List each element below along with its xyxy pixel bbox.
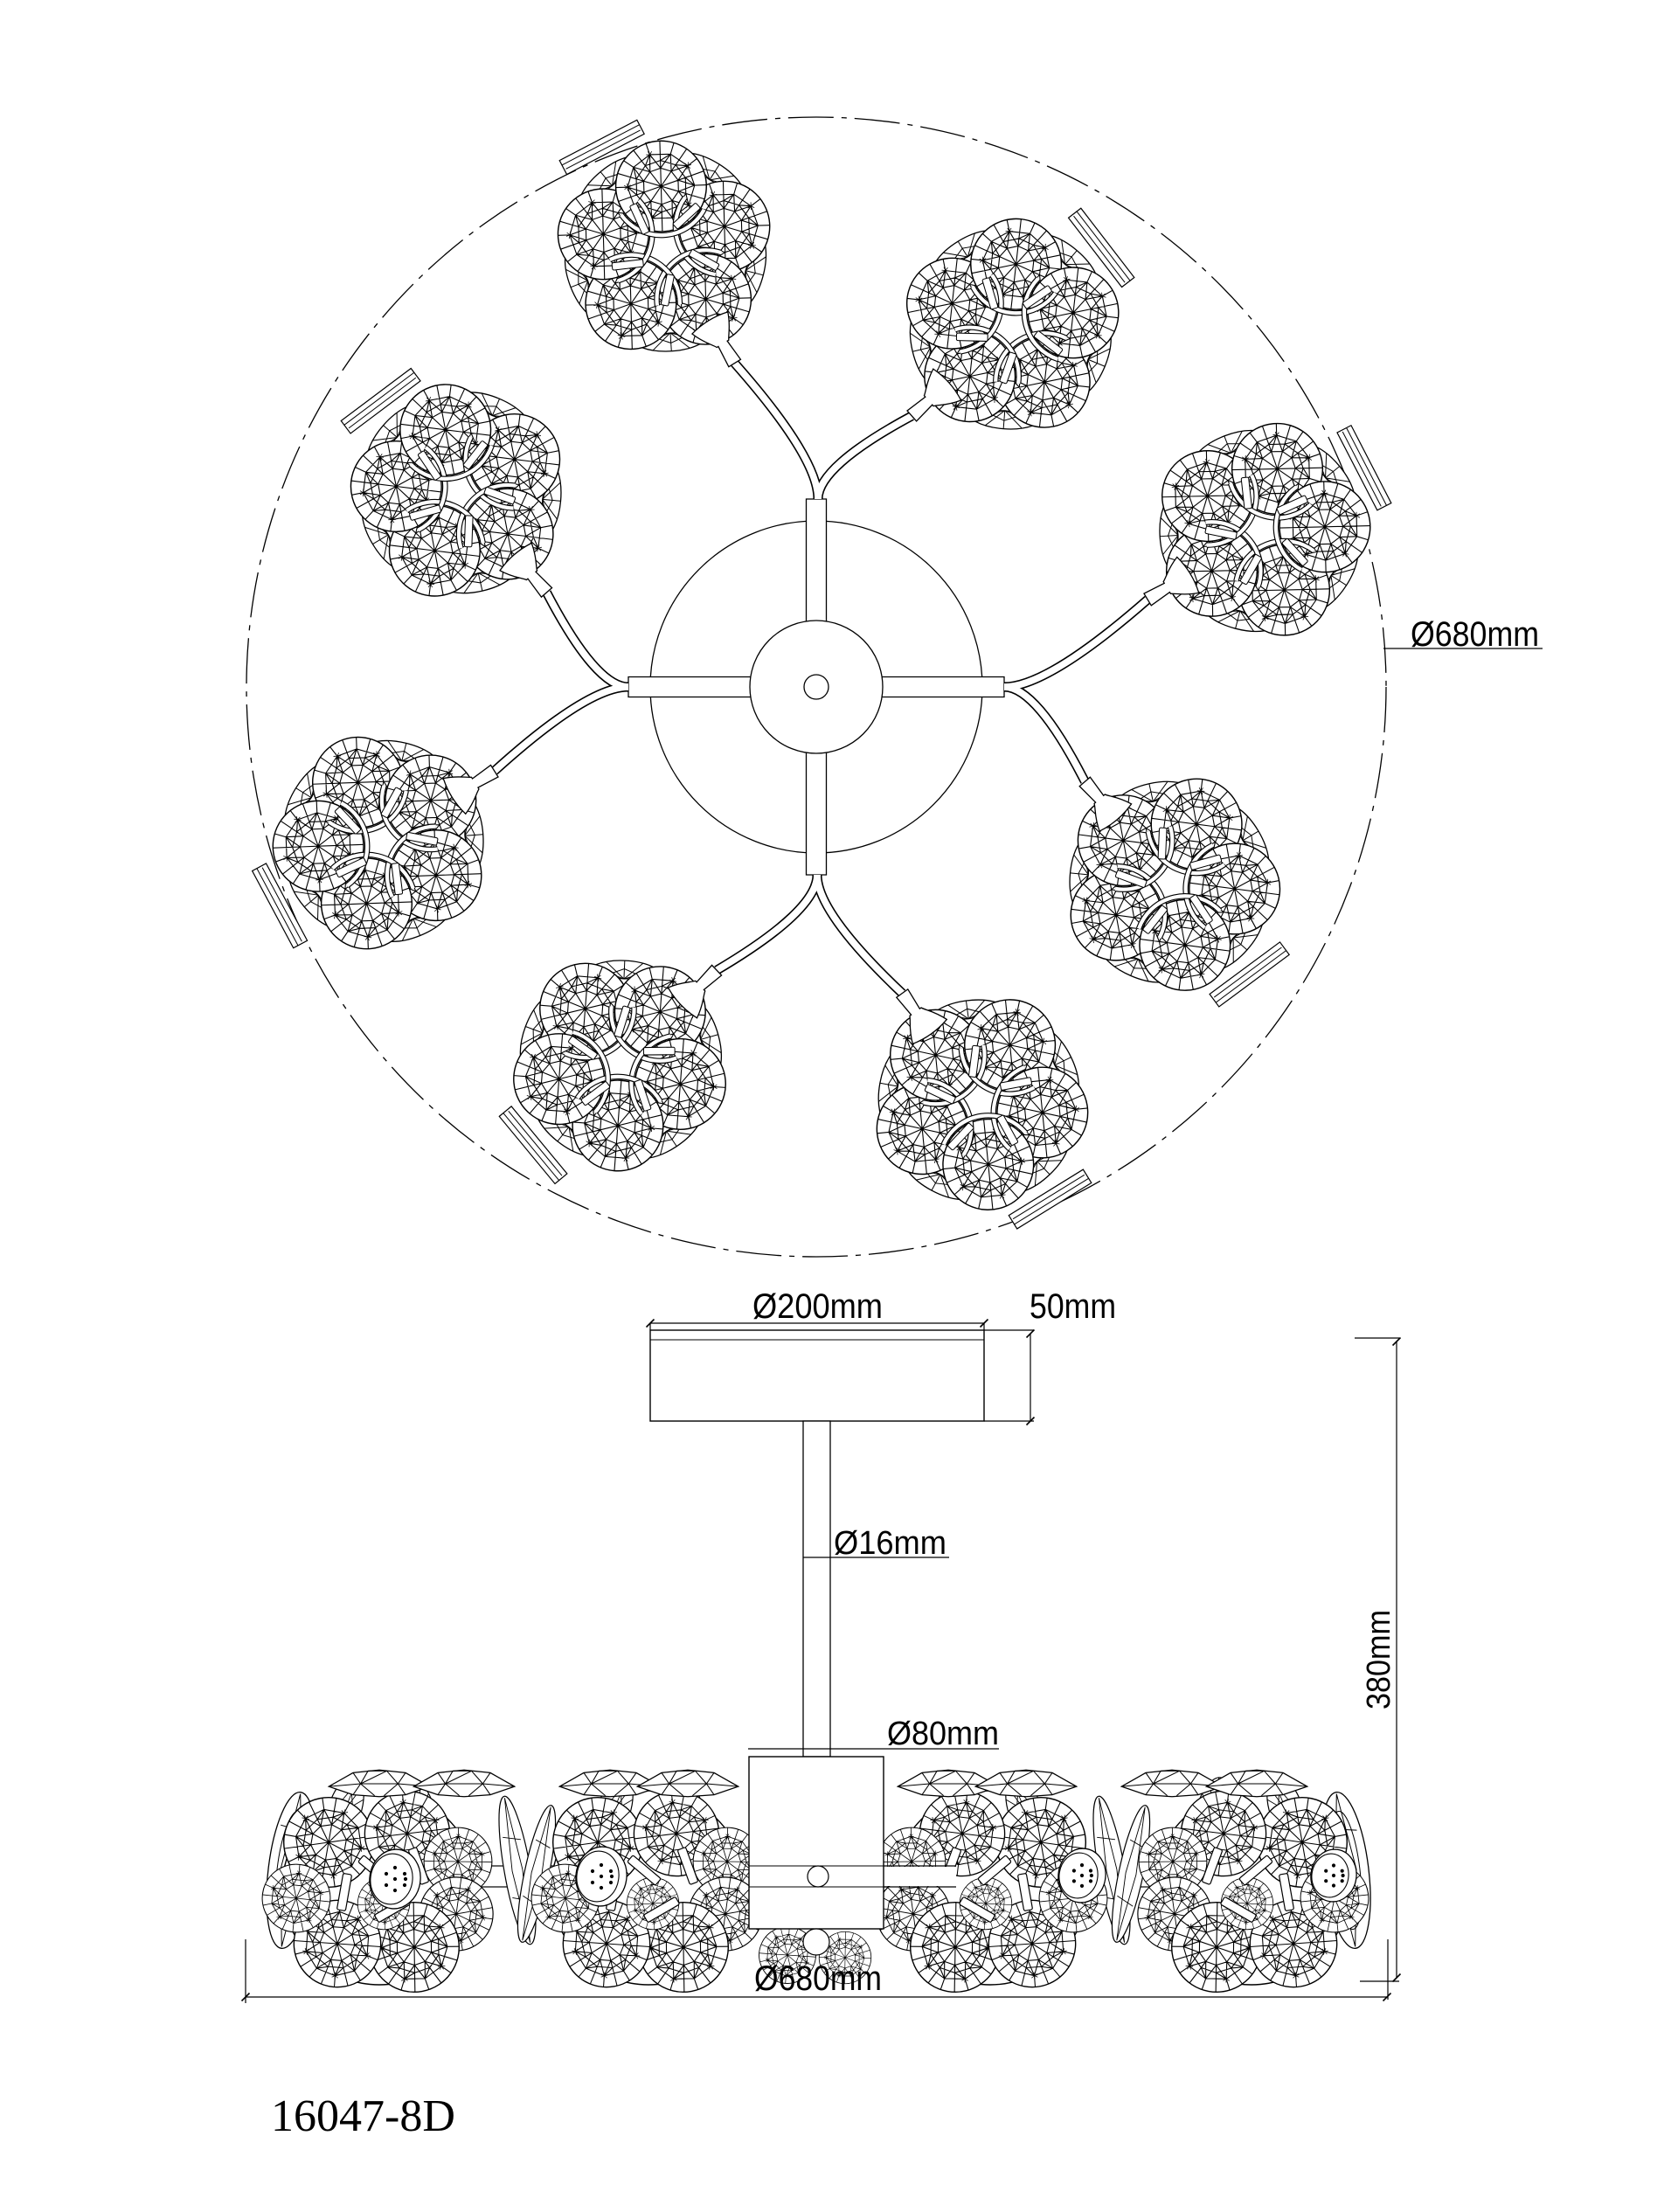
svg-text:Ø16mm: Ø16mm (834, 1525, 946, 1562)
svg-text:380mm: 380mm (1361, 1610, 1397, 1709)
svg-text:Ø200mm: Ø200mm (752, 1287, 883, 1326)
svg-text:50mm: 50mm (1030, 1287, 1116, 1326)
svg-text:16047-8D: 16047-8D (271, 2091, 455, 2141)
svg-text:Ø680mm: Ø680mm (1411, 615, 1539, 654)
svg-text:Ø80mm: Ø80mm (887, 1716, 999, 1752)
svg-text:Ø680mm: Ø680mm (754, 1959, 882, 1998)
